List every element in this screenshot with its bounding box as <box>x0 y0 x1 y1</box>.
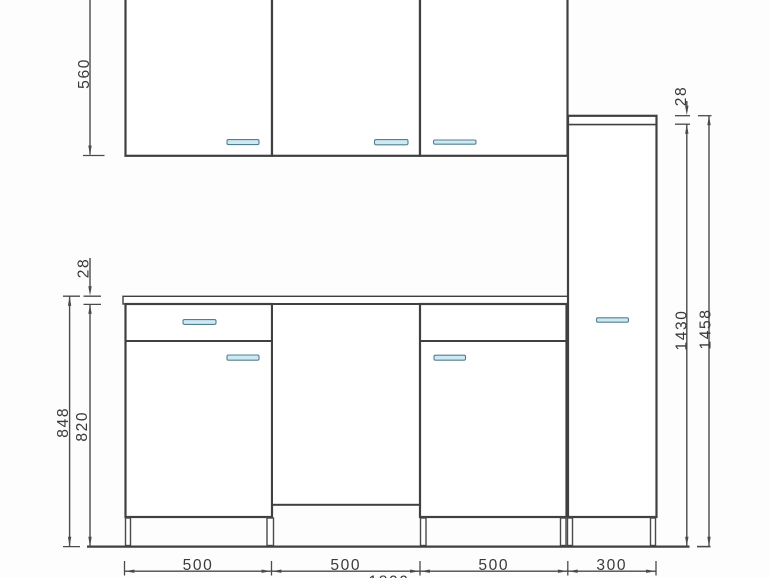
svg-text:300: 300 <box>596 557 627 574</box>
svg-text:28: 28 <box>76 258 93 279</box>
svg-text:1430: 1430 <box>673 309 690 350</box>
svg-text:848: 848 <box>55 407 72 438</box>
svg-text:1800: 1800 <box>368 574 409 578</box>
svg-text:820: 820 <box>74 411 91 442</box>
svg-text:500: 500 <box>478 557 509 574</box>
svg-text:500: 500 <box>330 557 361 574</box>
svg-text:1458: 1458 <box>698 308 715 349</box>
svg-text:28: 28 <box>673 86 690 107</box>
svg-text:500: 500 <box>183 557 214 574</box>
svg-text:560: 560 <box>76 58 93 89</box>
